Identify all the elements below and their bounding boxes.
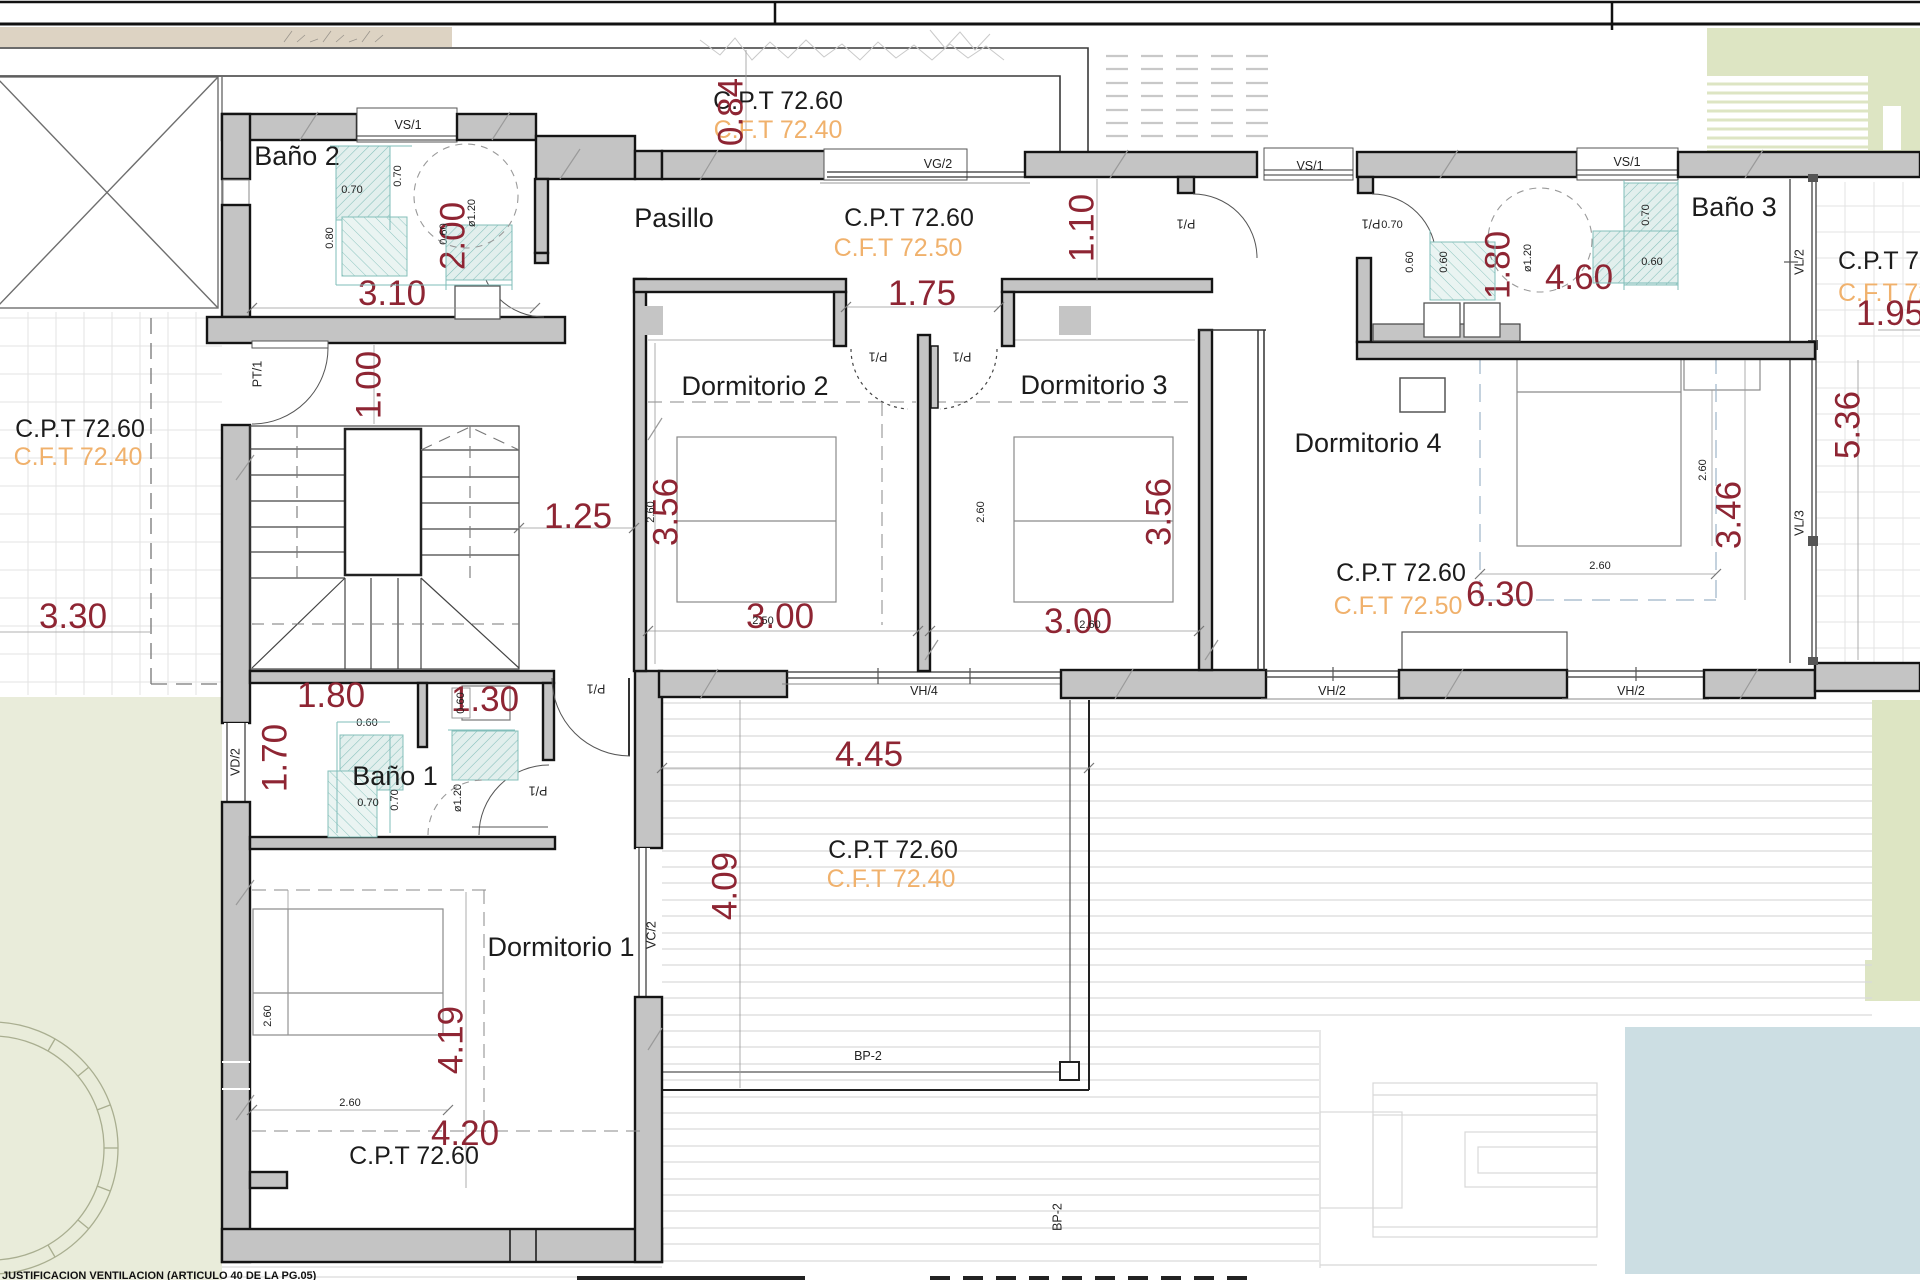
- svg-text:0.70: 0.70: [357, 797, 378, 809]
- svg-text:1.25: 1.25: [544, 497, 612, 536]
- svg-text:Dormitorio 1: Dormitorio 1: [487, 932, 634, 962]
- svg-text:2.60: 2.60: [262, 1005, 274, 1026]
- svg-text:C.P.T 72.60: C.P.T 72.60: [844, 204, 974, 232]
- svg-text:0.70: 0.70: [1381, 219, 1402, 231]
- svg-text:C.F.T 72.40: C.F.T 72.40: [14, 443, 143, 471]
- svg-text:0.60: 0.60: [1641, 256, 1662, 268]
- svg-text:VH/2: VH/2: [1617, 684, 1645, 698]
- svg-text:0.84: 0.84: [711, 78, 750, 146]
- svg-text:BP-2: BP-2: [854, 1049, 882, 1063]
- svg-text:PT/1: PT/1: [250, 361, 264, 387]
- svg-text:ø1.20: ø1.20: [452, 784, 464, 812]
- svg-text:4.60: 4.60: [1545, 258, 1613, 297]
- svg-text:2.60: 2.60: [1079, 619, 1100, 631]
- svg-text:Dormitorio 4: Dormitorio 4: [1294, 428, 1441, 458]
- svg-text:0.60: 0.60: [1438, 251, 1450, 272]
- svg-text:VS/1: VS/1: [1296, 159, 1323, 173]
- svg-text:1.80: 1.80: [297, 676, 365, 715]
- svg-text:2.60: 2.60: [975, 501, 987, 522]
- svg-text:0.70: 0.70: [1640, 204, 1652, 225]
- svg-text:C.F.T 72.50: C.F.T 72.50: [834, 234, 963, 262]
- svg-text:P/1: P/1: [1177, 217, 1196, 231]
- svg-text:2.50: 2.50: [752, 615, 773, 627]
- svg-text:P/1: P/1: [529, 784, 548, 798]
- svg-text:0.70: 0.70: [389, 789, 401, 810]
- svg-text:0.60: 0.60: [1404, 251, 1416, 272]
- svg-text:0.80: 0.80: [324, 227, 336, 248]
- svg-text:C.P.T 72.60: C.P.T 72.60: [1336, 559, 1466, 587]
- svg-text:C.P.T 72.60: C.P.T 72.60: [1838, 247, 1920, 275]
- svg-text:3.00: 3.00: [1044, 602, 1112, 641]
- svg-text:6.30: 6.30: [1466, 575, 1534, 614]
- svg-text:2.60: 2.60: [1697, 459, 1709, 480]
- svg-text:JUSTIFICACION VENTILACION (ART: JUSTIFICACION VENTILACION (ARTICULO 40 D…: [2, 1270, 317, 1280]
- svg-text:P/1: P/1: [1362, 217, 1381, 231]
- svg-text:1.70: 1.70: [255, 724, 294, 792]
- svg-text:3.56: 3.56: [1139, 478, 1178, 546]
- svg-text:4.19: 4.19: [431, 1006, 470, 1074]
- svg-text:1.75: 1.75: [888, 274, 956, 313]
- svg-text:ø1.20: ø1.20: [1522, 244, 1534, 272]
- svg-text:0.70: 0.70: [341, 184, 362, 196]
- svg-text:5.36: 5.36: [1828, 391, 1867, 459]
- svg-text:Dormitorio 2: Dormitorio 2: [681, 371, 828, 401]
- svg-text:1.00: 1.00: [349, 351, 388, 419]
- svg-text:0.60: 0.60: [356, 717, 377, 729]
- svg-text:VS/1: VS/1: [1613, 155, 1640, 169]
- svg-text:1.10: 1.10: [1062, 194, 1101, 262]
- svg-text:C.P.T 72.60: C.P.T 72.60: [15, 415, 145, 443]
- svg-text:C.F.T 72.50: C.F.T 72.50: [1334, 592, 1463, 620]
- svg-text:VG/2: VG/2: [924, 157, 953, 171]
- svg-text:ø1.20: ø1.20: [466, 199, 478, 227]
- svg-text:3.46: 3.46: [1709, 481, 1748, 549]
- svg-text:VD/2: VD/2: [228, 748, 242, 776]
- svg-text:Dormitorio 3: Dormitorio 3: [1020, 370, 1167, 400]
- svg-text:VL/3: VL/3: [1792, 510, 1806, 536]
- svg-text:VH/4: VH/4: [910, 684, 938, 698]
- svg-text:4.45: 4.45: [835, 735, 903, 774]
- svg-text:C.P.T 72.60: C.P.T 72.60: [828, 836, 958, 864]
- svg-text:4.09: 4.09: [705, 852, 744, 920]
- svg-text:0.60: 0.60: [438, 223, 450, 244]
- svg-text:0.60: 0.60: [455, 692, 467, 713]
- svg-text:3.30: 3.30: [39, 597, 107, 636]
- svg-text:4.20: 4.20: [431, 1114, 499, 1153]
- svg-text:VH/2: VH/2: [1318, 684, 1346, 698]
- svg-text:0.70: 0.70: [392, 165, 404, 186]
- svg-text:1.80: 1.80: [1478, 231, 1517, 299]
- svg-text:2.60: 2.60: [339, 1097, 360, 1109]
- svg-text:2.60: 2.60: [1589, 560, 1610, 572]
- svg-text:P/1: P/1: [587, 682, 606, 696]
- svg-text:C.F.T 72.40: C.F.T 72.40: [827, 865, 956, 893]
- svg-text:Baño 1: Baño 1: [352, 761, 438, 791]
- svg-text:3.10: 3.10: [358, 274, 426, 313]
- svg-text:BP-2: BP-2: [1050, 1203, 1064, 1231]
- svg-text:Baño 3: Baño 3: [1691, 192, 1777, 222]
- svg-text:P/1: P/1: [953, 350, 972, 364]
- svg-text:P/1: P/1: [869, 350, 888, 364]
- svg-text:Pasillo: Pasillo: [634, 203, 714, 233]
- svg-text:Baño 2: Baño 2: [254, 141, 340, 171]
- svg-text:1.95: 1.95: [1856, 294, 1920, 333]
- svg-text:2.60: 2.60: [645, 501, 657, 522]
- svg-text:VC/2: VC/2: [644, 921, 658, 949]
- svg-text:VS/1: VS/1: [394, 118, 421, 132]
